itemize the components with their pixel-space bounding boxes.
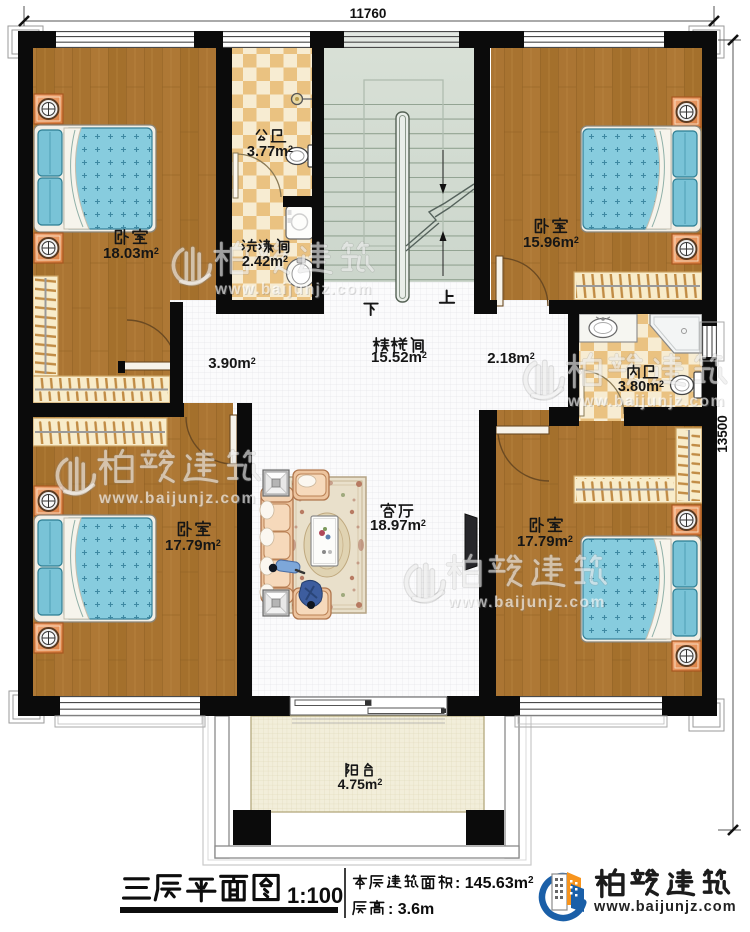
svg-text:www.baijunjz.com: www.baijunjz.com [593, 899, 737, 915]
svg-text:www.baijunjz.com: www.baijunjz.com [214, 281, 373, 298]
svg-text:17.79m2: 17.79m2 [165, 537, 221, 554]
svg-text:www.baijunjz.com: www.baijunjz.com [447, 594, 606, 611]
svg-text:11760: 11760 [350, 6, 387, 21]
svg-text:3.80m2: 3.80m2 [618, 379, 664, 395]
svg-text:18.97m2: 18.97m2 [370, 517, 426, 534]
svg-text:13500: 13500 [715, 415, 730, 453]
svg-text:15.96m2: 15.96m2 [523, 234, 579, 251]
svg-text:: 145.63m2: : 145.63m2 [455, 875, 534, 892]
svg-text:17.79m2: 17.79m2 [517, 533, 573, 550]
svg-text:18.03m2: 18.03m2 [103, 245, 159, 262]
svg-text:15.52m2: 15.52m2 [371, 349, 427, 366]
svg-text:1:100: 1:100 [287, 883, 343, 908]
svg-text:4.75m2: 4.75m2 [338, 776, 383, 792]
svg-text:2.42m2: 2.42m2 [242, 254, 288, 270]
svg-text:3.77m2: 3.77m2 [247, 144, 293, 160]
svg-text:www.baijunjz.com: www.baijunjz.com [567, 393, 726, 410]
svg-text:: 3.6m: : 3.6m [388, 901, 434, 918]
svg-text:3.90m2: 3.90m2 [208, 355, 256, 372]
svg-text:www.baijunjz.com: www.baijunjz.com [98, 490, 257, 507]
svg-text:2.18m2: 2.18m2 [487, 350, 535, 367]
